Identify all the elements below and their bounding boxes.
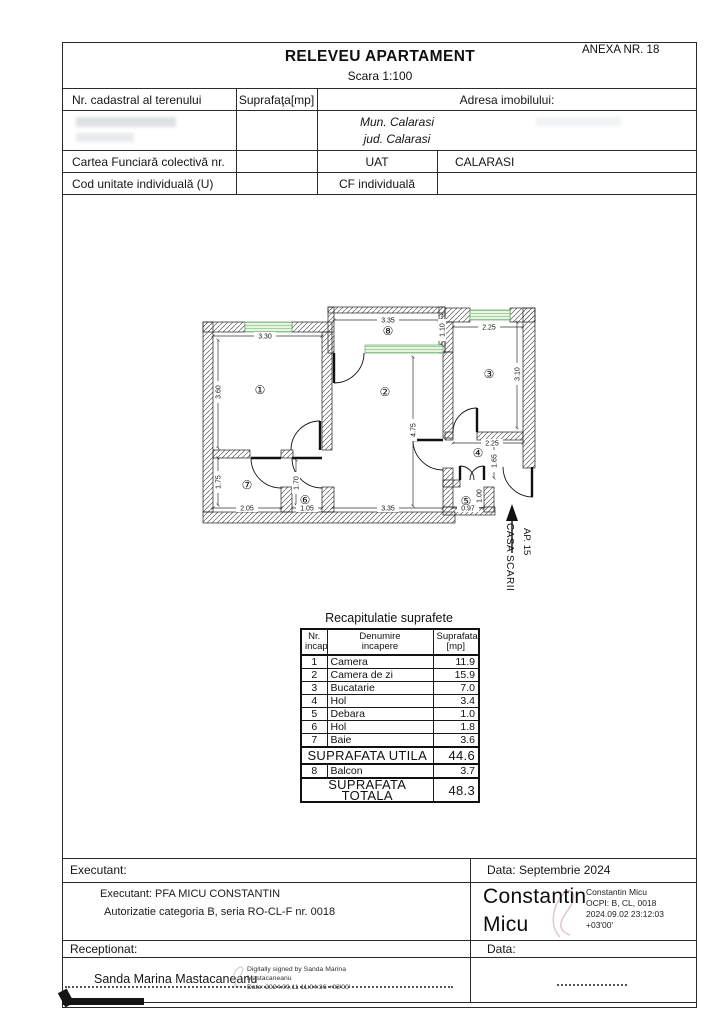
dim-room7-w: 2.05 xyxy=(240,506,254,513)
dim-room1-w: 3.30 xyxy=(258,334,272,341)
signature-line xyxy=(557,984,627,986)
redacted-text xyxy=(536,117,621,126)
signature-detail: Constantin Micu xyxy=(586,887,647,898)
apartment-number-label: AP. 15 xyxy=(521,528,532,555)
staircase-label: CASA SCARII xyxy=(504,523,515,591)
dim-room1-h: 3.60 xyxy=(216,385,223,399)
suprafata-utila-value: 44.6 xyxy=(433,747,479,764)
anexa-label: ANEXA NR. 18 xyxy=(582,44,659,56)
digital-signature-detail: Digitally signed by Sanda Marina xyxy=(247,965,346,974)
window-room3 xyxy=(470,310,510,320)
dim-room2-w: 3.35 xyxy=(381,506,395,513)
signature-detail: OCPI: B, CL, 0018 xyxy=(586,898,656,909)
dim-balcony-h: 1.10 xyxy=(440,323,447,337)
scale-label: Scara 1:100 xyxy=(63,69,697,83)
date-top: Data: Septembrie 2024 xyxy=(487,863,610,877)
room-label-5: ⑤ xyxy=(461,494,472,508)
divider xyxy=(62,882,697,883)
address-label: Adresa imobilului: xyxy=(317,93,697,107)
divider xyxy=(62,110,697,111)
table-row: 8Balcon3.7 xyxy=(301,764,479,778)
suprafata-totala-row: SUPRAFATA TOTALA 48.3 xyxy=(301,778,479,802)
table-row: 3Bucatarie7.0 xyxy=(301,682,479,695)
recap-table: Nr.incap. Denumireincapere Suprafata[mp]… xyxy=(300,628,480,803)
suprafata-utila-row: SUPRAFATA UTILA 44.6 xyxy=(301,747,479,764)
address-city: Mun. Calarasi xyxy=(317,115,477,129)
divider xyxy=(437,150,438,194)
signature-line xyxy=(65,986,453,988)
walls xyxy=(203,307,535,523)
digital-signature-detail: Mastacaneanu xyxy=(247,974,292,983)
dim-room7-h: 1.75 xyxy=(216,475,223,489)
table-row: 5Debara1.0 xyxy=(301,708,479,721)
table-row: 1Camera11.9 xyxy=(301,655,479,669)
suprafata-totala-value: 48.3 xyxy=(433,778,479,802)
cadastral-number-label: Nr. cadastral al terenului xyxy=(72,93,201,107)
table-row: 2Camera de zi15.9 xyxy=(301,669,479,682)
divider xyxy=(62,957,697,958)
table-row: 6Hol1.8 xyxy=(301,721,479,734)
receptionat-label: Receptionat: xyxy=(70,942,137,956)
divider xyxy=(62,88,697,89)
scan-artifact xyxy=(62,998,144,1005)
window-balcony xyxy=(365,345,443,353)
address-county: jud. Calarasi xyxy=(317,132,477,146)
recap-title: Recapitulatie suprafete xyxy=(300,611,478,625)
dim-room6-h: 1.70 xyxy=(294,476,301,490)
table-row: 7Baie3.6 xyxy=(301,734,479,748)
dim-room5-h: 1.00 xyxy=(477,489,484,503)
room-label-2: ② xyxy=(380,385,391,399)
executant-name: Executant: PFA MICU CONSTANTIN xyxy=(100,888,280,900)
executant-authorization: Autorizatie categoria B, seria RO-CL-F n… xyxy=(104,906,335,918)
uat-value: CALARASI xyxy=(455,155,514,169)
room-label-3: ③ xyxy=(484,367,495,381)
signature-name-line1: Constantin xyxy=(483,885,586,909)
suprafata-totala-label: SUPRAFATA TOTALA xyxy=(301,778,433,802)
divider xyxy=(62,858,697,859)
floor-plan: 3.30 3.35 2.25 2.25 0.97 3.35 1.05 2.05 … xyxy=(180,290,560,610)
divider xyxy=(62,150,697,151)
redacted-text xyxy=(76,133,134,142)
dim-room4-w: 2.25 xyxy=(485,441,499,448)
cartea-funciara-label: Cartea Funciară colectivă nr. xyxy=(72,155,225,169)
dim-room2-h: 4.75 xyxy=(411,423,418,437)
cf-individuala-label: CF individuală xyxy=(317,177,437,191)
uat-label: UAT xyxy=(317,155,437,169)
signature-detail: 2024.09.02 23:12:03 xyxy=(586,909,664,920)
divider xyxy=(62,940,697,941)
document-page: RELEVEU APARTAMENT Scara 1:100 ANEXA NR.… xyxy=(0,0,706,1024)
dim-room3-h: 3.10 xyxy=(515,367,522,381)
divider xyxy=(62,172,697,173)
recap-header-row: Nr.incap. Denumireincapere Suprafata[mp] xyxy=(301,629,479,655)
executant-label: Executant: xyxy=(70,863,127,877)
dim-room3-w: 2.25 xyxy=(482,325,496,332)
redacted-text xyxy=(76,117,176,127)
window-room1 xyxy=(245,322,292,332)
dim-room4-h: 1.65 xyxy=(492,454,499,468)
divider xyxy=(62,194,697,195)
signature-name-line2: Micu xyxy=(483,913,529,937)
date-bottom: Data: xyxy=(487,942,516,956)
room-label-7: ⑦ xyxy=(242,478,253,492)
room-label-1: ① xyxy=(255,383,266,397)
surface-label: Suprafaţa[mp] xyxy=(236,93,317,107)
divider xyxy=(62,1002,697,1003)
signature-detail: +03'00' xyxy=(586,920,613,931)
table-row: 4Hol3.4 xyxy=(301,695,479,708)
cod-unitate-label: Cod unitate individuală (U) xyxy=(72,177,213,191)
room-label-6: ⑥ xyxy=(300,493,311,507)
suprafata-utila-label: SUPRAFATA UTILA xyxy=(301,747,433,764)
room-label-4: ④ xyxy=(473,446,484,460)
area-summary: Recapitulatie suprafete Nr.incap. Denumi… xyxy=(300,611,478,803)
divider xyxy=(470,858,471,1002)
room-label-8: ⑧ xyxy=(383,324,394,338)
